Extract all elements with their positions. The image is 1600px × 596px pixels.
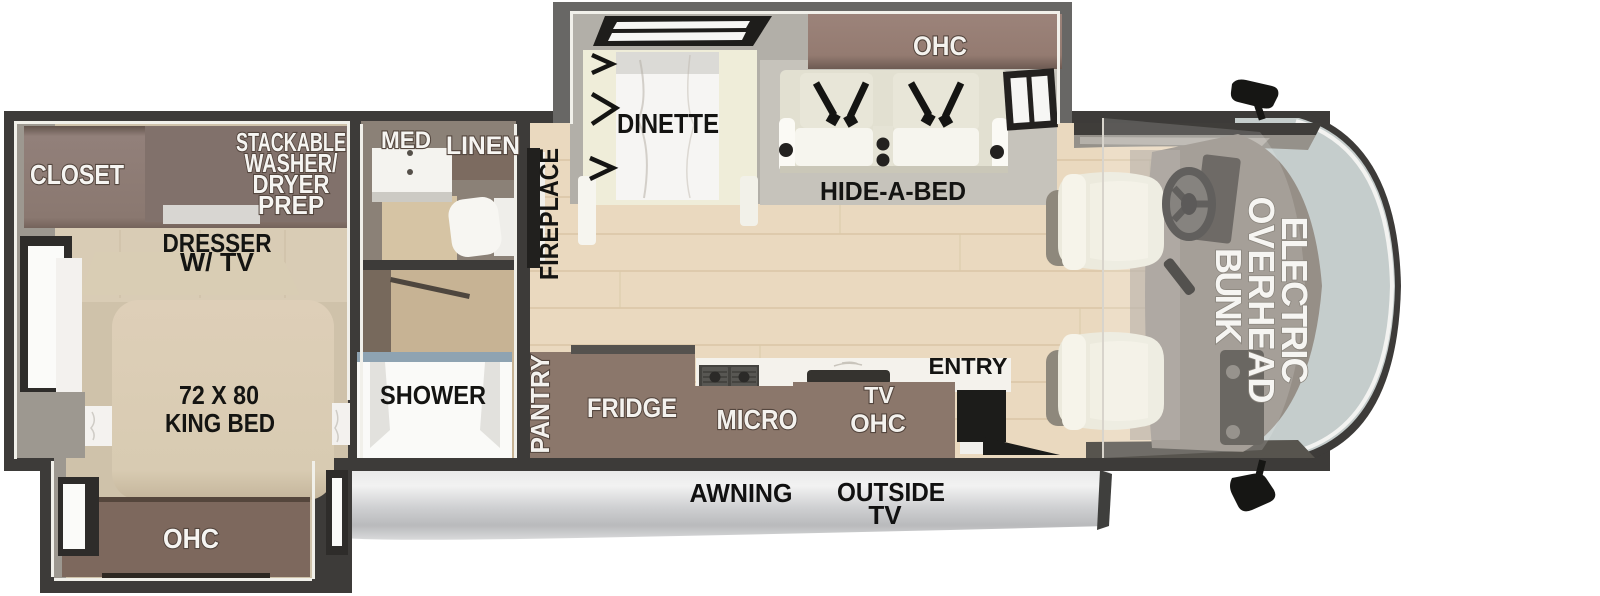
- svg-text:PREP: PREP: [258, 190, 324, 220]
- svg-text:OHC: OHC: [163, 523, 219, 554]
- svg-text:BUNK: BUNK: [1208, 248, 1249, 344]
- svg-text:FRIDGE: FRIDGE: [587, 393, 677, 423]
- svg-text:ENTRY: ENTRY: [929, 353, 1008, 379]
- svg-text:MED: MED: [381, 127, 431, 154]
- svg-text:AWNING: AWNING: [690, 478, 793, 508]
- svg-text:OHC: OHC: [913, 31, 967, 61]
- svg-text:72 X 80: 72 X 80: [179, 380, 259, 410]
- svg-text:TV: TV: [868, 500, 902, 530]
- svg-text:MICRO: MICRO: [717, 404, 798, 435]
- svg-text:FIREPLACE: FIREPLACE: [534, 148, 564, 280]
- svg-text:SHOWER: SHOWER: [380, 380, 486, 410]
- svg-text:DINETTE: DINETTE: [617, 108, 719, 139]
- svg-text:HIDE-A-BED: HIDE-A-BED: [820, 176, 966, 206]
- svg-text:TV: TV: [864, 382, 894, 408]
- svg-text:KING BED: KING BED: [165, 408, 275, 438]
- svg-text:LINEN: LINEN: [446, 132, 520, 160]
- svg-text:OHC: OHC: [850, 410, 906, 438]
- svg-text:CLOSET: CLOSET: [30, 159, 124, 190]
- svg-text:W/ TV: W/ TV: [180, 247, 255, 277]
